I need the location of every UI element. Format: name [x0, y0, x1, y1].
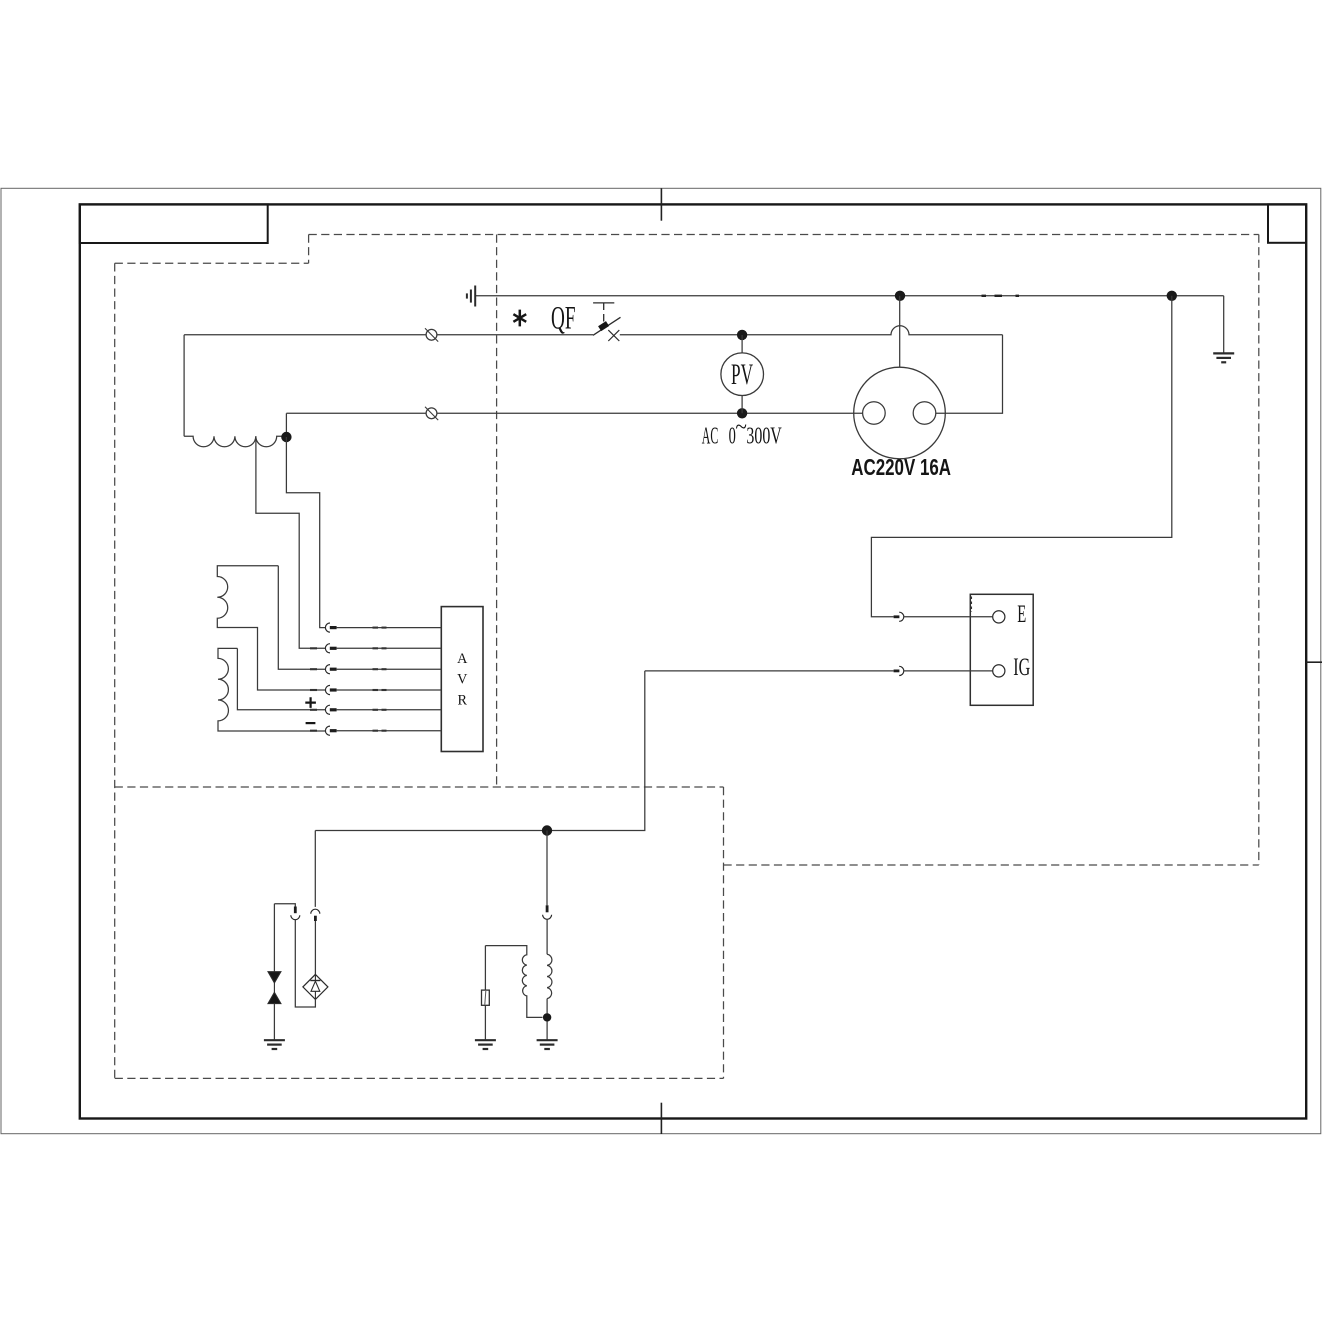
svg-text:QF: QF [551, 301, 576, 337]
svg-text:PV: PV [731, 358, 753, 391]
svg-text:E: E [1017, 601, 1026, 628]
svg-text:IG: IG [1013, 654, 1030, 681]
svg-text:AC: AC [702, 424, 719, 450]
svg-text:R: R [457, 692, 467, 708]
svg-text:V: V [457, 672, 468, 688]
svg-text:A: A [457, 651, 468, 667]
svg-text:~: ~ [735, 415, 747, 441]
svg-text:300V: 300V [746, 424, 782, 450]
svg-text:AC220V 16A: AC220V 16A [851, 454, 951, 480]
